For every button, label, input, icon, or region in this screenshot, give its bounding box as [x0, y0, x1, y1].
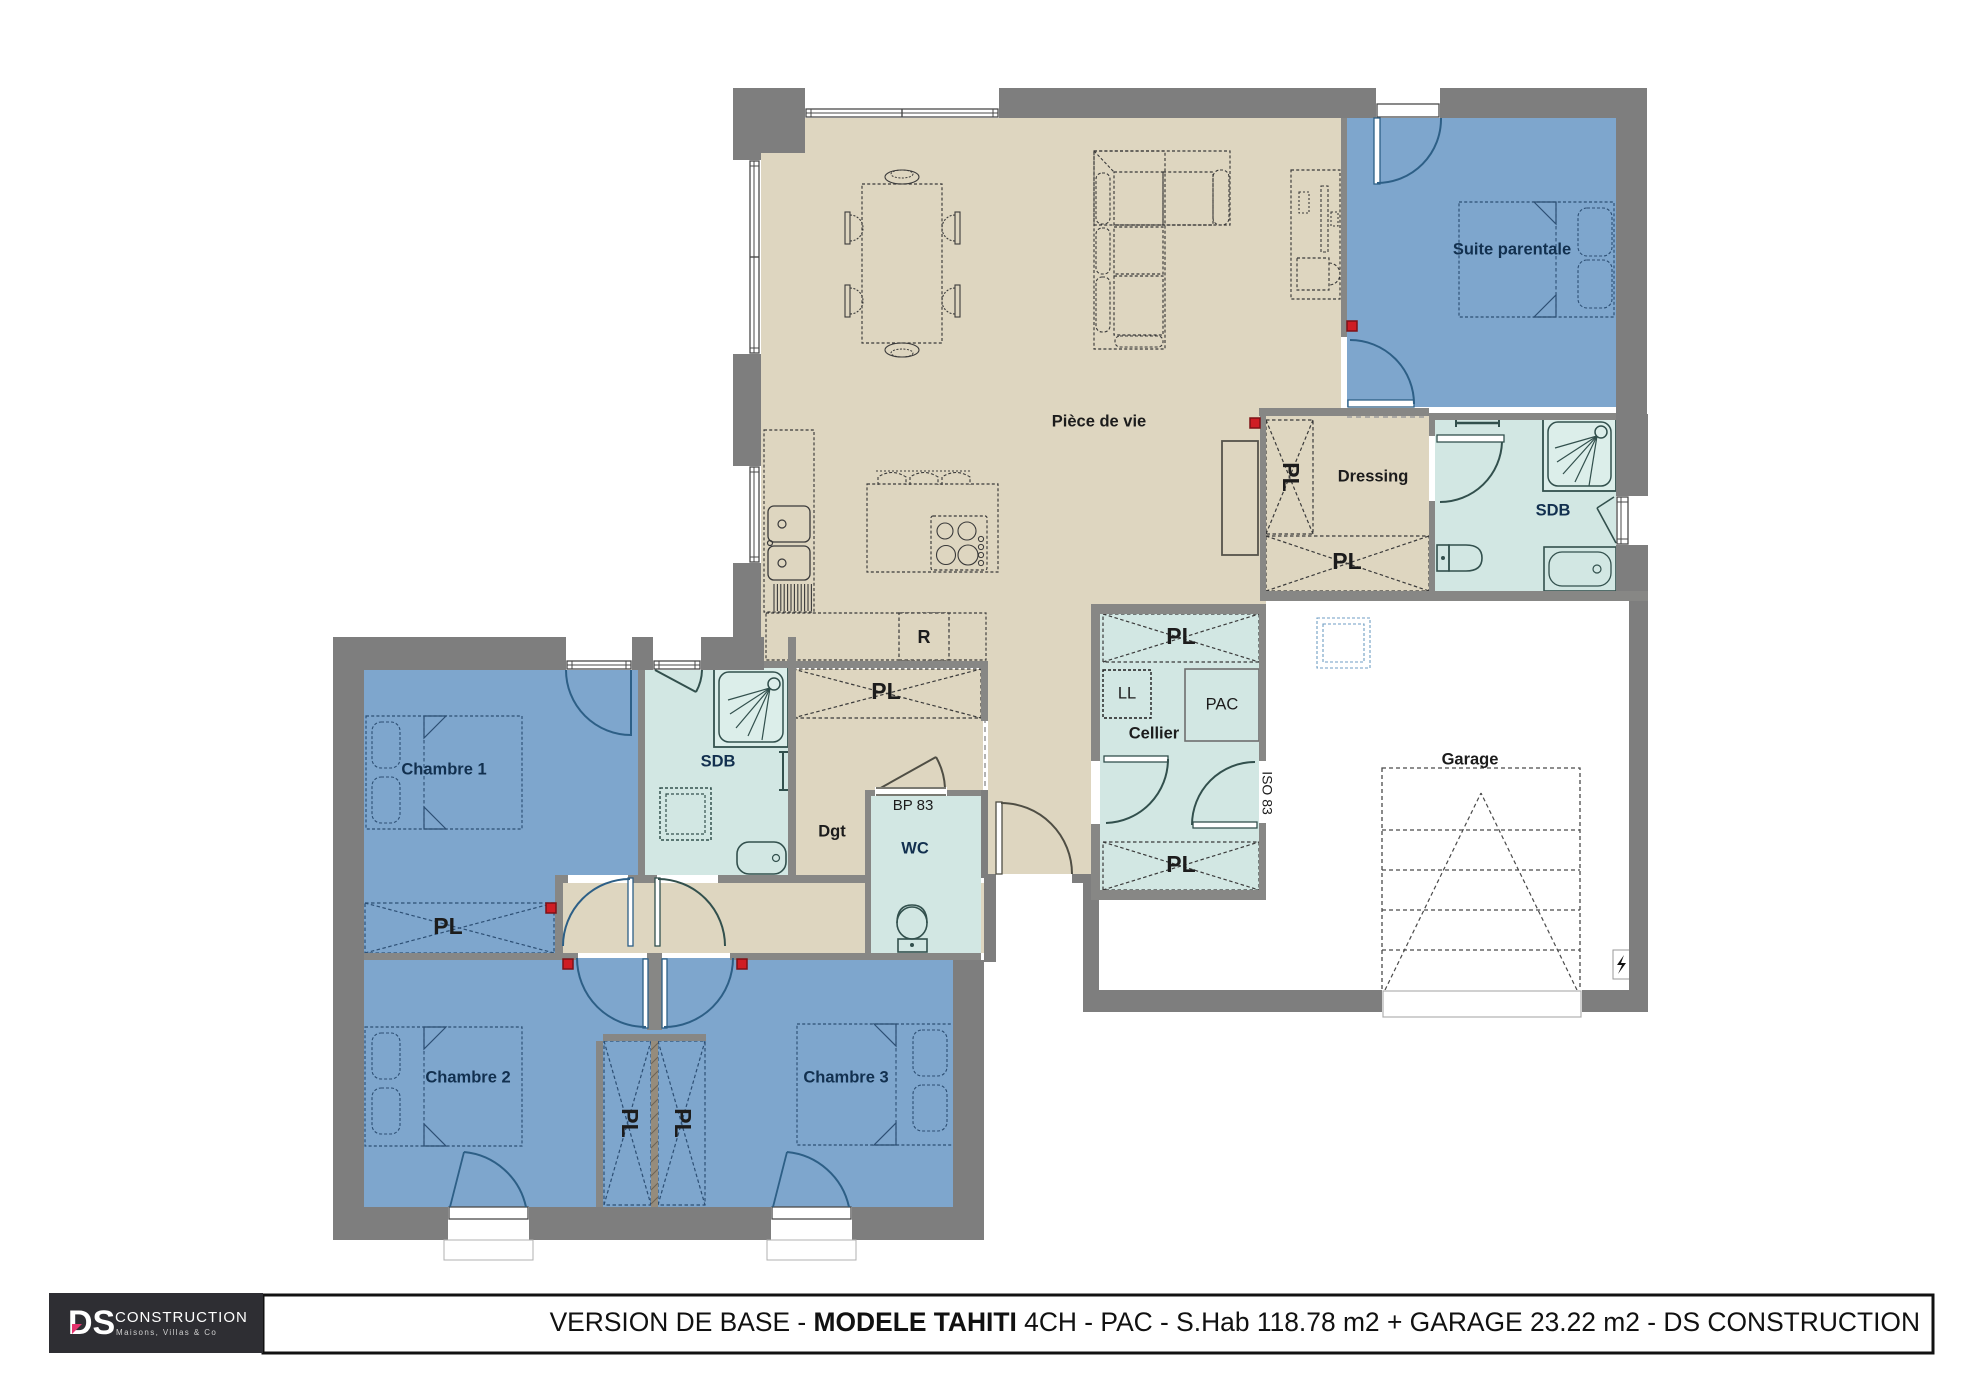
svg-text:PL: PL — [670, 1108, 696, 1137]
svg-text:PL: PL — [1332, 548, 1361, 574]
svg-text:PL: PL — [1166, 623, 1195, 649]
svg-text:PL: PL — [617, 1108, 643, 1137]
svg-text:CONSTRUCTION: CONSTRUCTION — [115, 1309, 248, 1326]
svg-text:SDB: SDB — [701, 752, 736, 770]
svg-text:LL: LL — [1118, 684, 1136, 702]
svg-text:Garage: Garage — [1442, 750, 1499, 768]
svg-text:R: R — [918, 627, 931, 647]
svg-text:Suite parentale: Suite parentale — [1453, 240, 1571, 258]
svg-text:Dgt: Dgt — [818, 822, 846, 840]
svg-text:ISO 83: ISO 83 — [1259, 771, 1275, 815]
svg-text:Chambre 1: Chambre 1 — [401, 760, 486, 778]
svg-text:WC: WC — [901, 839, 929, 857]
svg-text:Dressing: Dressing — [1338, 467, 1409, 485]
svg-text:Chambre 3: Chambre 3 — [803, 1068, 888, 1086]
svg-text:SDB: SDB — [1536, 501, 1571, 519]
svg-text:PL: PL — [1166, 851, 1195, 877]
svg-text:Cellier: Cellier — [1129, 724, 1180, 742]
svg-text:Chambre 2: Chambre 2 — [425, 1068, 510, 1086]
svg-text:PAC: PAC — [1206, 695, 1239, 713]
svg-text:Pièce de vie: Pièce de vie — [1052, 412, 1146, 430]
svg-text:BP 83: BP 83 — [893, 797, 934, 814]
svg-text:PL: PL — [433, 913, 462, 939]
svg-text:VERSION DE BASE - MODELE TAHIT: VERSION DE BASE - MODELE TAHITI 4CH - PA… — [550, 1307, 1920, 1337]
svg-text:PL: PL — [1278, 462, 1304, 491]
svg-text:PL: PL — [871, 678, 900, 704]
svg-text:Maisons, Villas & Co: Maisons, Villas & Co — [116, 1328, 217, 1337]
svg-text:DS: DS — [68, 1304, 115, 1342]
